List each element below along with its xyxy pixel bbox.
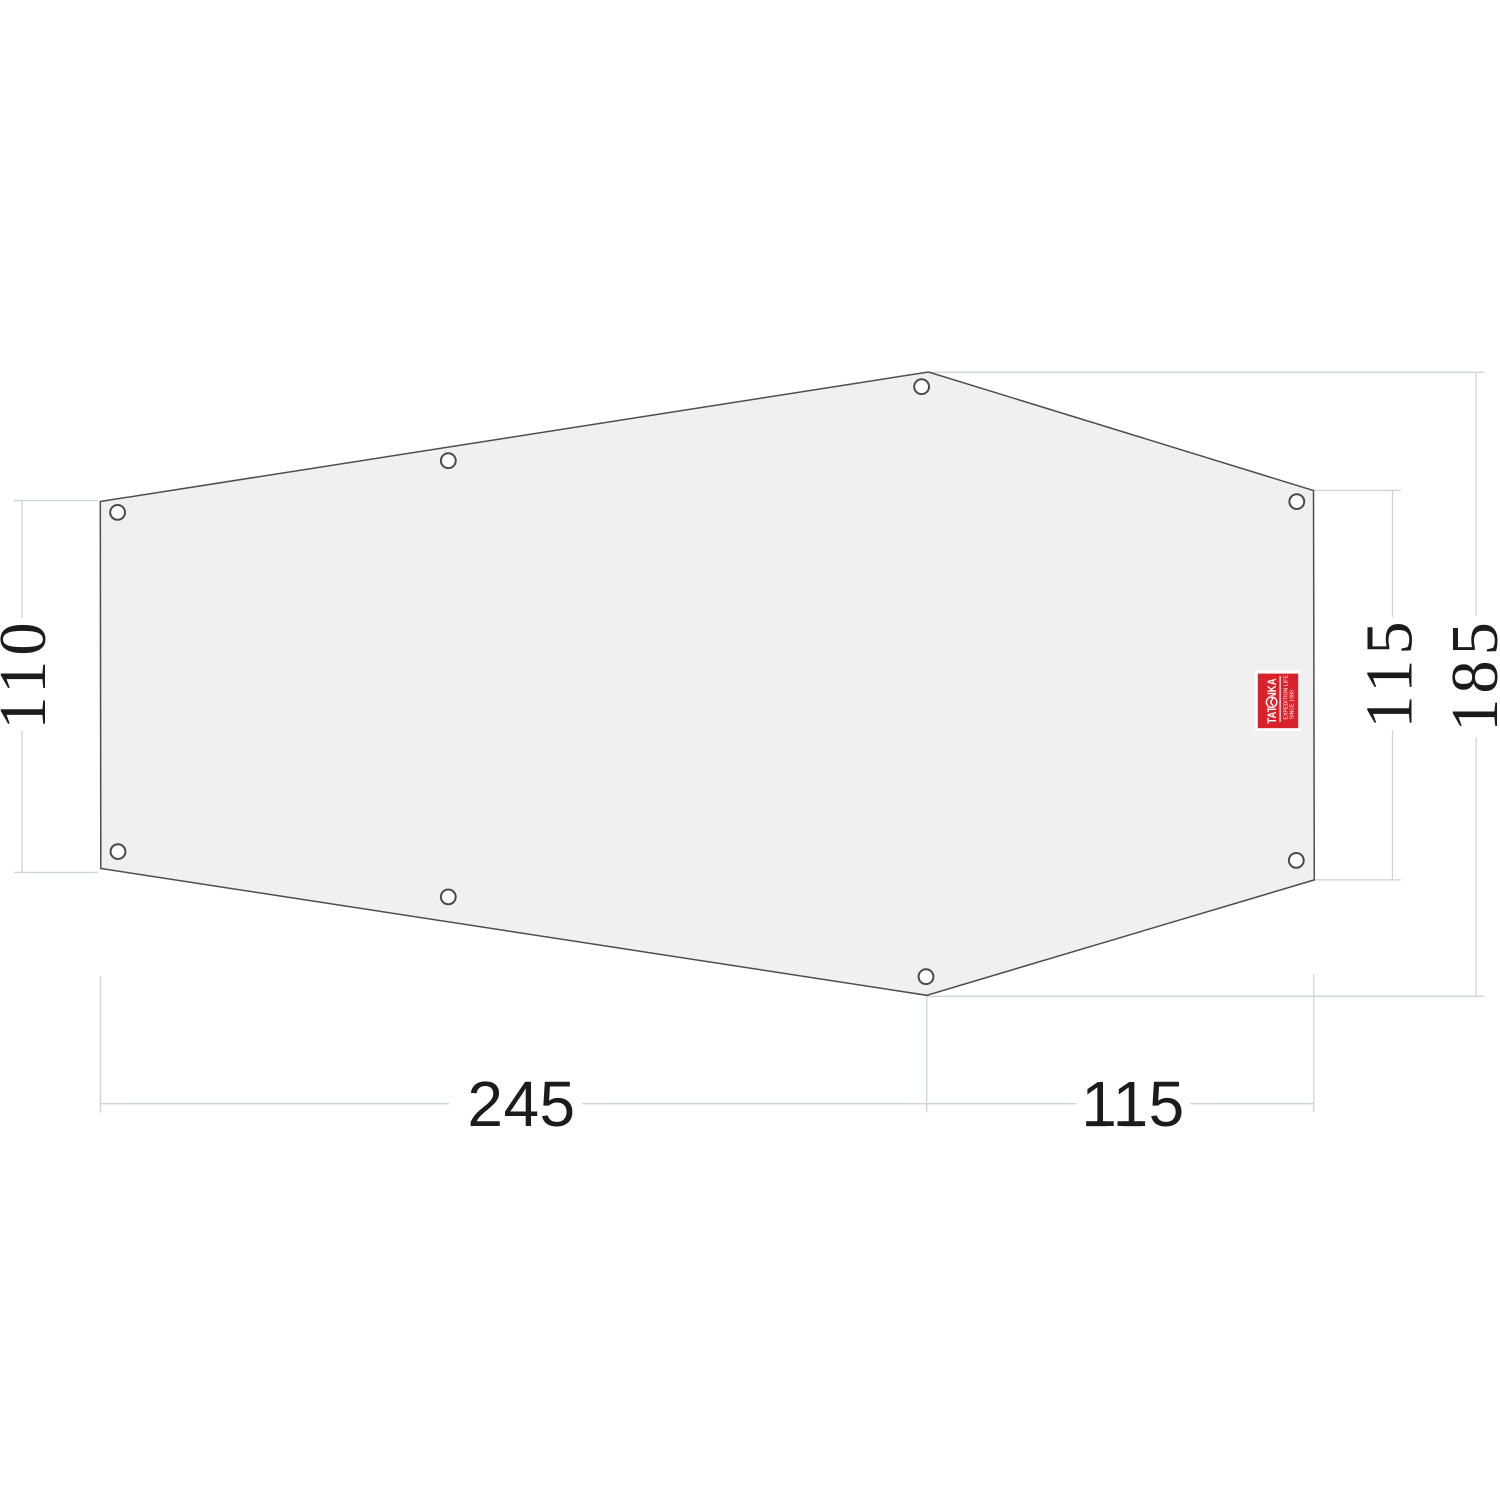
svg-text:115: 115: [1354, 616, 1427, 728]
svg-text:SINCE 1980: SINCE 1980: [1289, 690, 1295, 719]
svg-text:245: 245: [467, 1068, 575, 1140]
svg-text:115: 115: [1081, 1068, 1185, 1140]
svg-text:110: 110: [0, 617, 60, 729]
svg-text:185: 185: [1439, 617, 1500, 732]
